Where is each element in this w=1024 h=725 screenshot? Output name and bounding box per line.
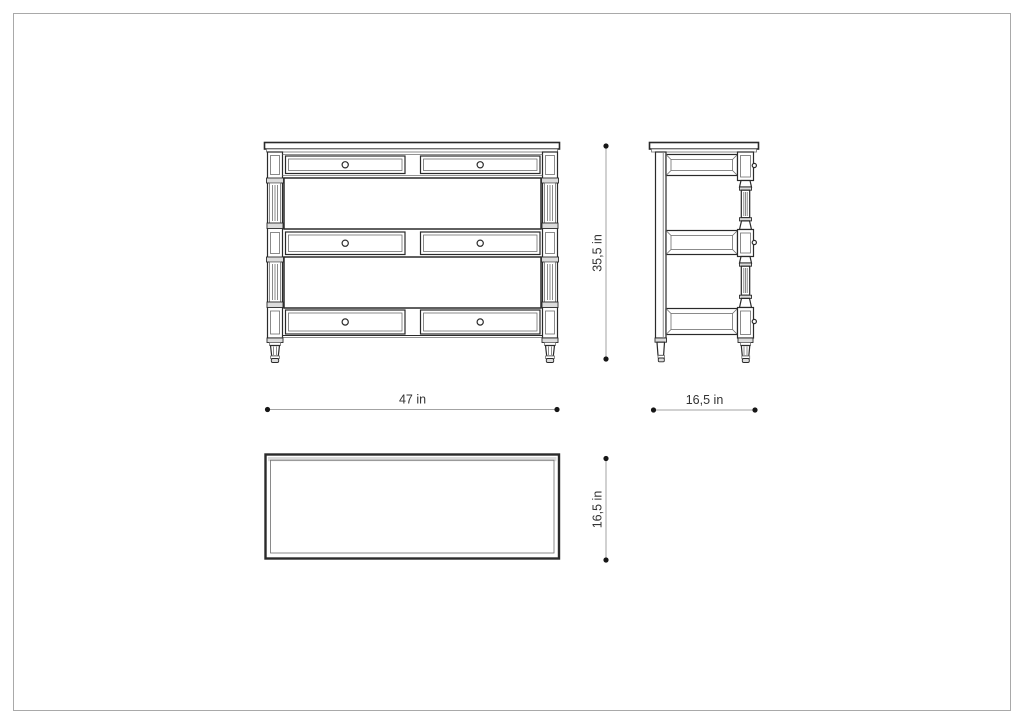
knob-icon xyxy=(477,162,483,168)
technical-drawing: 35,5 in 47 in 16,5 in 16,5 in xyxy=(0,0,1024,725)
side-back-leg xyxy=(656,152,667,338)
drawer-row-3 xyxy=(286,310,541,334)
dimension-endpoint-dot xyxy=(603,557,608,562)
dimension-endpoint-dot xyxy=(603,456,608,461)
dimension-label-width: 47 in xyxy=(399,393,426,407)
drawer-edge-bump xyxy=(752,163,756,167)
dimension-width: 47 in xyxy=(265,393,560,413)
side-front-leg xyxy=(738,152,754,338)
knob-icon xyxy=(342,319,348,325)
dimension-endpoint-dot xyxy=(603,356,608,361)
top-view-outline xyxy=(266,455,560,559)
dimension-label-depth-top: 16,5 in xyxy=(591,491,605,529)
drawer-row-1 xyxy=(286,156,541,174)
side-back-foot xyxy=(655,338,667,362)
dimension-depth-side: 16,5 in xyxy=(651,393,758,413)
dimension-height: 35,5 in xyxy=(591,143,609,361)
front-opening-2 xyxy=(284,257,541,308)
dimension-label-depth-side: 16,5 in xyxy=(686,393,724,407)
dimension-label-height: 35,5 in xyxy=(591,234,605,272)
side-rail-1 xyxy=(666,155,738,176)
dimension-depth-top: 16,5 in xyxy=(591,456,609,563)
front-top-slab xyxy=(265,143,560,150)
knob-icon xyxy=(477,240,483,246)
dimension-endpoint-dot xyxy=(752,407,757,412)
dimension-endpoint-dot xyxy=(265,407,270,412)
dimension-endpoint-dot xyxy=(603,143,608,148)
side-front-foot xyxy=(738,338,753,363)
knob-icon xyxy=(342,162,348,168)
knob-icon xyxy=(477,319,483,325)
top-view xyxy=(266,455,560,559)
dimension-endpoint-dot xyxy=(651,407,656,412)
drawer-edge-bump xyxy=(752,240,756,244)
front-left-foot xyxy=(267,338,283,363)
knob-icon xyxy=(342,240,348,246)
front-opening-1 xyxy=(284,178,541,229)
drawer-row-2 xyxy=(286,232,541,255)
drawer-edge-bump xyxy=(752,319,756,323)
side-top-slab xyxy=(650,143,759,150)
side-view xyxy=(650,143,759,363)
dimension-endpoint-dot xyxy=(554,407,559,412)
side-rail-2 xyxy=(666,231,738,255)
front-top-molding xyxy=(267,149,558,152)
front-right-foot xyxy=(542,338,558,363)
side-rail-3 xyxy=(666,309,738,335)
front-view xyxy=(265,143,560,363)
